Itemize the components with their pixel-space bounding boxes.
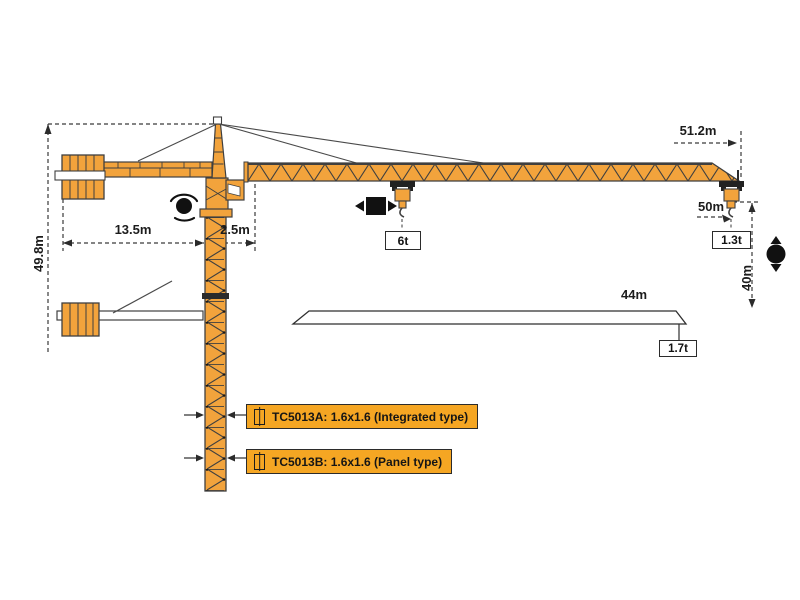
mast-section-icon	[254, 454, 265, 470]
ground-assembly	[57, 281, 203, 336]
tip-load-box: 1.3t	[712, 231, 751, 249]
dim-label-lift-height: 40m	[740, 265, 754, 291]
counter-jib	[55, 155, 212, 199]
dimension-arrowheads	[45, 124, 756, 308]
model-label-tc5013b-text: TC5013B: 1.6x1.6 (Panel type)	[272, 455, 442, 469]
mast-section-icon	[254, 409, 265, 425]
trolley-travel-icon	[355, 197, 397, 215]
mid-span-load-box: 1.7t	[659, 340, 697, 357]
dim-label-slew-offset: 2.5m	[213, 223, 257, 237]
load-chart-bar	[293, 311, 686, 340]
model-label-tc5013a: TC5013A: 1.6x1.6 (Integrated type)	[246, 404, 478, 429]
max-load-box: 6t	[385, 231, 421, 250]
dim-label-counter-jib-radius: 13.5m	[103, 223, 163, 237]
dim-label-mid-span: 44m	[606, 288, 662, 302]
tie-rods	[138, 124, 497, 166]
dim-label-hook-radius: 50m	[692, 200, 730, 214]
tower-mast	[202, 217, 229, 491]
hoist-icon	[767, 236, 786, 272]
model-label-tc5013b: TC5013B: 1.6x1.6 (Panel type)	[246, 449, 452, 474]
dim-label-jib-radius: 51.2m	[668, 124, 728, 138]
crane-technical-drawing	[0, 0, 800, 600]
dim-label-tower-height: 49.8m	[32, 235, 46, 272]
model-label-tc5013a-text: TC5013A: 1.6x1.6 (Integrated type)	[272, 410, 468, 424]
counterweight	[55, 155, 105, 199]
slew-icon	[171, 195, 197, 221]
main-jib	[244, 162, 739, 182]
operator-cab	[226, 180, 244, 200]
crane-specification-diagram: 49.8m 13.5m 2.5m 51.2m 50m 40m 44m 6t 1.…	[0, 0, 800, 600]
